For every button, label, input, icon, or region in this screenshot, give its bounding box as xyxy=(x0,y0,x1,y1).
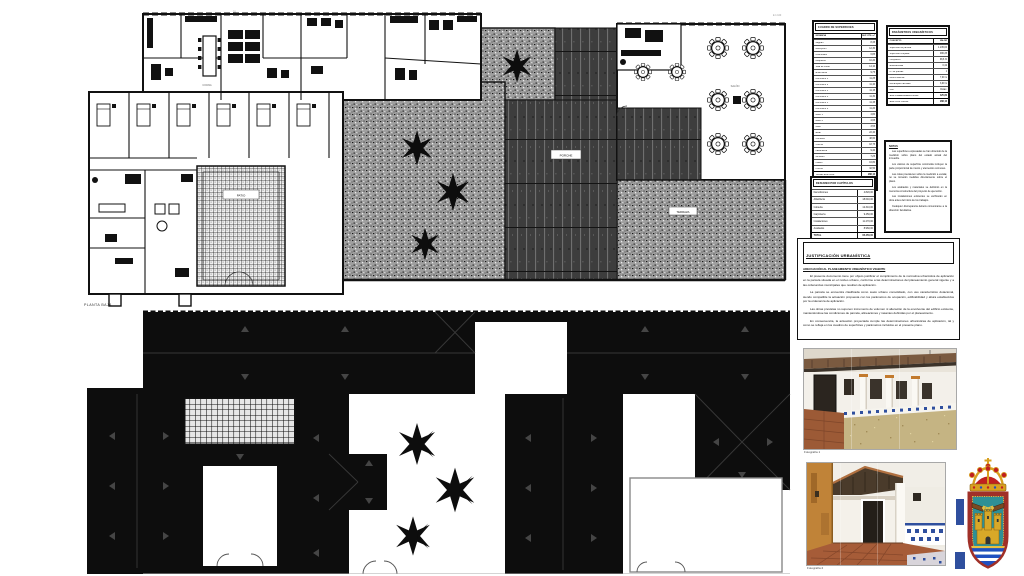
photo-courtyard-2 xyxy=(806,462,946,566)
table-row: Demoliciones4.820,00 xyxy=(812,189,874,196)
table-row: Acabados8.960,00 xyxy=(812,225,874,232)
justification-paragraph: Las obras previstas no suponen increment… xyxy=(803,307,954,316)
justification-title: JUSTIFICACIÓN URBANÍSTICA xyxy=(806,253,870,258)
courtyard-photo-1-image xyxy=(804,349,956,449)
courtyard-photo-2-image xyxy=(807,463,945,565)
note-paragraph: Las superficies expresadas se han obteni… xyxy=(889,150,947,161)
kitchen-label: COCINA xyxy=(202,84,212,87)
note-paragraph: Los acabados y materiales se definirán e… xyxy=(889,186,947,194)
municipal-coat-of-arms xyxy=(963,456,1013,572)
terrace-label: TERRAZA xyxy=(676,210,689,214)
justification-paragraph: El presente documento tiene por objeto j… xyxy=(803,274,954,288)
note-paragraph: Las instalaciones existentes se verifica… xyxy=(889,195,947,203)
justification-paragraph: La parcela se encuentra clasificada como… xyxy=(803,290,954,304)
patio-label: PATIO xyxy=(237,194,246,198)
photo-courtyard-1 xyxy=(803,348,957,450)
urban-justification-block: JUSTIFICACIÓN URBANÍSTICA ADECUACIÓN AL … xyxy=(797,238,960,340)
porch-label: PORCHE xyxy=(560,154,573,158)
note-paragraph: Los valores de superficie construida inc… xyxy=(889,163,947,171)
surfaces-table: CUADRO DE SUPERFICIES ESTANCIA SUP. ÚTIL… xyxy=(812,20,878,191)
drawing-sheet: PORCHE TERRAZA PATIO SALÓN COCINA 03 E 1… xyxy=(0,0,1024,576)
table-row: Albañilería18.640,00 xyxy=(812,196,874,203)
surfaces-table-header: ESTANCIA SUP. ÚTIL m² xyxy=(814,33,876,40)
parameters-table: PARÁMETROS URBANÍSTICOS CONCEPTO VALOR S… xyxy=(886,25,950,106)
table-row: Cubierta12.310,00 xyxy=(812,203,874,210)
note-paragraph: Las cotas prevalecen sobre la medición a… xyxy=(889,173,947,184)
budget-table-title: RESUMEN POR CAPÍTULOS xyxy=(813,179,872,187)
justification-subtitle: ADECUACIÓN AL PLANEAMIENTO URBANÍSTICO V… xyxy=(803,267,954,271)
sheet-note-right: E 1:100 xyxy=(773,14,782,17)
floor-and-roof-plans: PORCHE TERRAZA PATIO SALÓN COCINA 03 E 1… xyxy=(85,8,795,574)
floor-plan: PORCHE TERRAZA PATIO SALÓN COCINA 03 E 1… xyxy=(89,11,785,307)
floor-plan-caption: PLANTA BAJA xyxy=(84,303,112,307)
surfaces-table-title: CUADRO DE SUPERFICIES xyxy=(815,23,874,31)
parameters-table-title: PARÁMETROS URBANÍSTICOS xyxy=(889,28,946,36)
photo-2-caption: Fotografía 2 xyxy=(807,566,823,570)
justification-paragraph: En consecuencia, la actuación proyectada… xyxy=(803,319,954,328)
budget-table: RESUMEN POR CAPÍTULOS Demoliciones4.820,… xyxy=(810,176,876,241)
note-paragraph: Cualquier discrepancia deberá comunicars… xyxy=(889,205,947,213)
justification-title-bar: JUSTIFICACIÓN URBANÍSTICA xyxy=(803,242,954,264)
table-row: Carpintería9.450,00 xyxy=(812,210,874,217)
table-total-row: SUP. ÚTIL TOTAL288,10 xyxy=(888,98,948,104)
table-row: Instalaciones11.270,00 xyxy=(812,217,874,224)
notes-title: NOTAS xyxy=(889,145,947,149)
roof-plan xyxy=(87,312,790,574)
parameters-table-header: CONCEPTO VALOR xyxy=(888,38,948,45)
notes-block: NOTAS Las superficies expresadas se han … xyxy=(884,140,952,233)
photo-1-caption: Fotografía 1 xyxy=(804,450,820,454)
